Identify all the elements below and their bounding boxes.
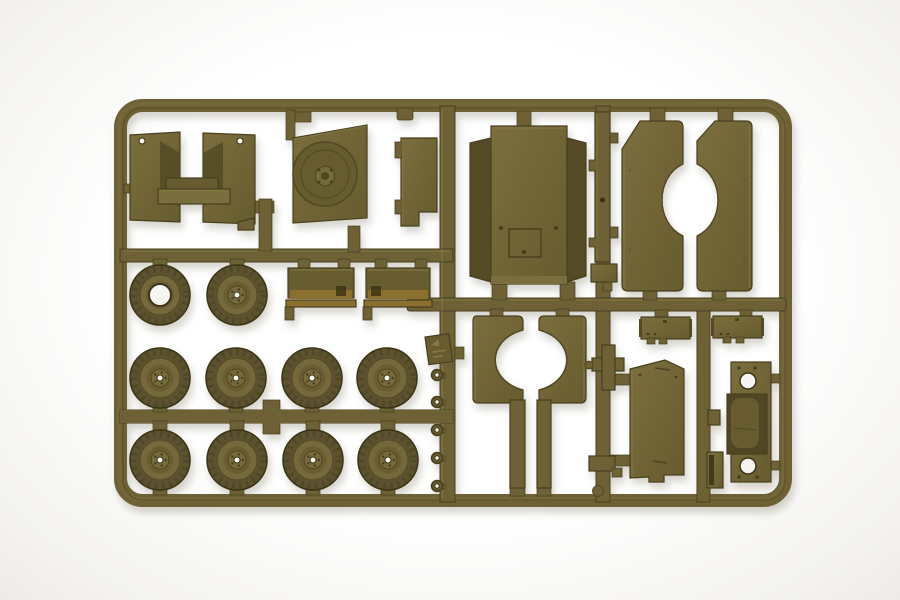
mudguard-half-left: [473, 316, 525, 488]
sprue-scene: [0, 0, 900, 600]
road-wheel-open-hub: [130, 265, 190, 325]
road-wheel: [207, 430, 267, 490]
windshield-frame-bracket: [130, 132, 255, 230]
seat-bulkhead: [727, 362, 771, 482]
mudguard-half-right: [537, 316, 586, 488]
road-wheel: [206, 348, 266, 408]
small-box-on-runner: [708, 410, 720, 425]
small-plate-with-stripe: [707, 452, 723, 488]
road-wheel: [357, 348, 417, 408]
stowage-box-2: [711, 316, 764, 343]
small-angle-plate: [395, 138, 437, 226]
stowage-box-1: [639, 317, 692, 344]
road-wheel: [358, 430, 418, 490]
road-wheel: [282, 348, 342, 408]
sprue-photo: [0, 0, 900, 600]
fender-panel-left: [622, 121, 683, 291]
small-stowage-box-upper: [591, 264, 617, 282]
road-wheel: [283, 430, 343, 490]
thin-chassis-rail: [589, 112, 618, 262]
fender-panel-right: [697, 121, 752, 291]
stowage-box-strip-2: [363, 268, 432, 320]
cargo-bed-floor-panel: [470, 126, 586, 284]
cab-panel-with-hatch-disc: [293, 125, 367, 223]
stowage-box-strip-1: [285, 268, 356, 320]
molded-part-tag: [425, 334, 453, 365]
road-wheel: [207, 265, 267, 325]
sprue: [119, 104, 786, 502]
road-wheel: [130, 430, 190, 490]
road-wheel: [130, 348, 190, 408]
hood-panel: [630, 360, 684, 482]
